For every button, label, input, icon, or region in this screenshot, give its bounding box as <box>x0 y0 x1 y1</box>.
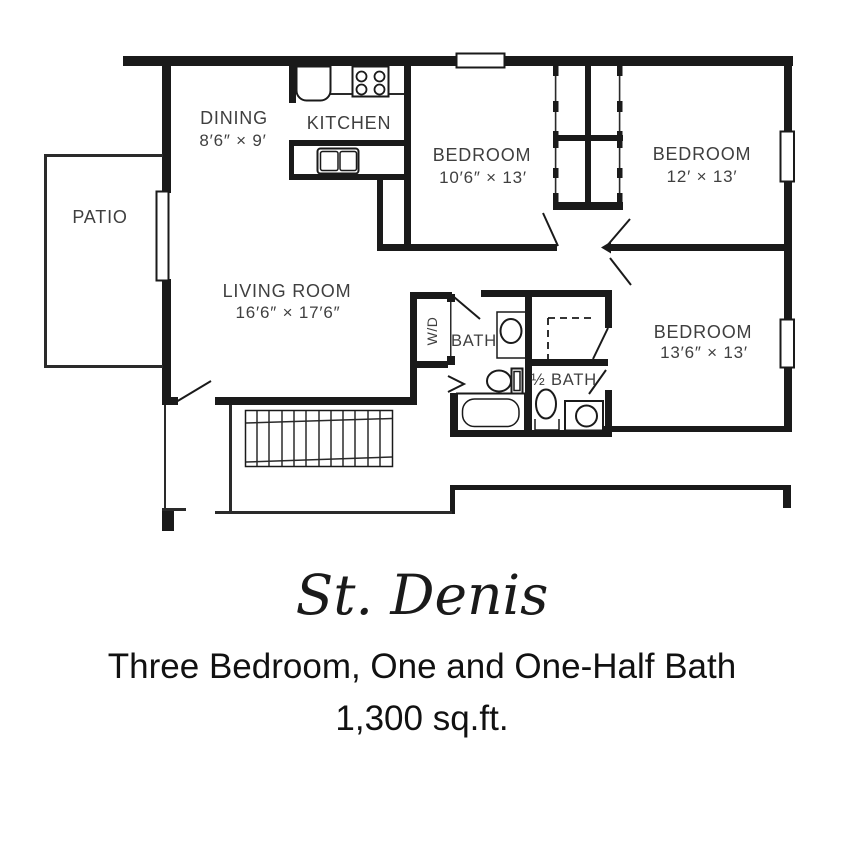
halfbath-sink <box>576 406 597 427</box>
label-bedroom-bottom-right: BEDROOM <box>654 322 753 342</box>
closet-bottom-wall <box>553 202 623 210</box>
wall-counter-bottom <box>291 174 409 180</box>
entry-side-line <box>164 405 166 508</box>
plan-subtitle: Three Bedroom, One and One-Half Bath <box>0 646 844 688</box>
label-bath: BATH <box>451 332 497 350</box>
label-living-room-dims: 16′6″ × 17′6″ <box>236 303 341 322</box>
entry-foot-vertical <box>162 508 174 531</box>
wall-halfbath-right <box>605 390 612 432</box>
label-dining-dims: 8′6″ × 9′ <box>199 131 266 150</box>
window-bedroom-top-right <box>781 132 795 182</box>
wall-halfbath-top <box>526 359 608 366</box>
entry-foot-horizontal <box>162 508 186 511</box>
label-washer-dryer: W/D <box>424 317 440 346</box>
wall-left-foot <box>162 397 178 405</box>
floor-plan-page: DINING 8′6″ × 9′ KITCHEN PATIO BEDROOM 1… <box>0 0 844 844</box>
wall-counter-top <box>289 140 411 146</box>
halfbath-toilet-base <box>535 419 559 430</box>
patio-door <box>157 192 169 281</box>
wall-hall-right <box>610 244 791 251</box>
wall-kitchen-right <box>404 62 411 250</box>
bath-toilet-bowl <box>487 371 511 392</box>
halfbath-toilet-bowl <box>536 390 556 419</box>
bath-door-swing <box>454 297 480 319</box>
wall-corridor-bottom <box>452 485 791 490</box>
wall-wd-bottom <box>410 361 448 368</box>
corridor-bottom-line <box>215 511 452 514</box>
wall-left-upper <box>162 56 171 193</box>
window-bedroom-bottom-right <box>781 320 795 368</box>
wd-door-jamb-bottom <box>447 356 455 365</box>
corridor-left-line <box>229 405 232 514</box>
label-kitchen: KITCHEN <box>307 113 392 133</box>
label-bedroom-top-right: BEDROOM <box>653 144 752 164</box>
plan-area: 1,300 sq.ft. <box>0 698 844 740</box>
floor-plan-drawing: DINING 8′6″ × 9′ KITCHEN PATIO BEDROOM 1… <box>0 0 844 552</box>
wall-wd-left <box>410 292 417 405</box>
wall-kitchen-fridge-side <box>289 62 296 103</box>
bedroom1-door-swing <box>543 213 558 246</box>
patio-wall-left <box>44 154 47 368</box>
label-half-bath: ½ BATH <box>531 371 597 389</box>
wall-bedroom3-bottom <box>604 426 791 432</box>
wall-left-lower <box>162 279 171 405</box>
kitchen-counter-line-1 <box>330 93 352 95</box>
label-bedroom-top-right-dims: 12′ × 13′ <box>667 167 738 186</box>
halfbath-fixtures <box>535 390 603 431</box>
label-dining: DINING <box>200 108 268 128</box>
bath-sink <box>501 319 522 343</box>
wall-corridor-left-post <box>450 485 455 514</box>
bath-fixtures <box>457 312 526 431</box>
staircase <box>246 411 393 467</box>
patio-outline <box>44 154 163 368</box>
wall-hall-left <box>377 244 557 251</box>
closet3-door-swing <box>593 328 608 359</box>
bedroom3-door-swing <box>610 258 631 285</box>
wall-chase-left <box>377 180 383 250</box>
wall-closet3-cap <box>605 290 612 328</box>
refrigerator <box>297 67 331 101</box>
bath-inner-door-swing <box>448 376 464 392</box>
wall-tub-left <box>450 393 457 437</box>
wall-wd-top <box>410 292 452 299</box>
label-patio: PATIO <box>72 207 127 227</box>
patio-wall-bottom <box>44 365 163 368</box>
label-living-room: LIVING ROOM <box>223 281 352 301</box>
wall-bath-top <box>481 290 608 297</box>
wall-corridor-right-stub <box>783 485 791 508</box>
entry-door-swing <box>176 381 211 402</box>
closet-divider <box>553 135 623 141</box>
kitchen-counter-line-2 <box>388 93 404 95</box>
bedroom2-door-swing <box>606 219 630 247</box>
plan-name: St. Denis <box>0 560 844 630</box>
label-bedroom-top-left: BEDROOM <box>433 145 532 165</box>
label-bedroom-bottom-right-dims: 13′6″ × 13′ <box>660 343 748 362</box>
window-top <box>457 54 505 68</box>
wall-living-bottom <box>215 397 413 405</box>
label-bedroom-top-left-dims: 10′6″ × 13′ <box>439 168 527 187</box>
bedroom-closets <box>553 62 623 210</box>
patio-wall-top <box>44 154 163 157</box>
